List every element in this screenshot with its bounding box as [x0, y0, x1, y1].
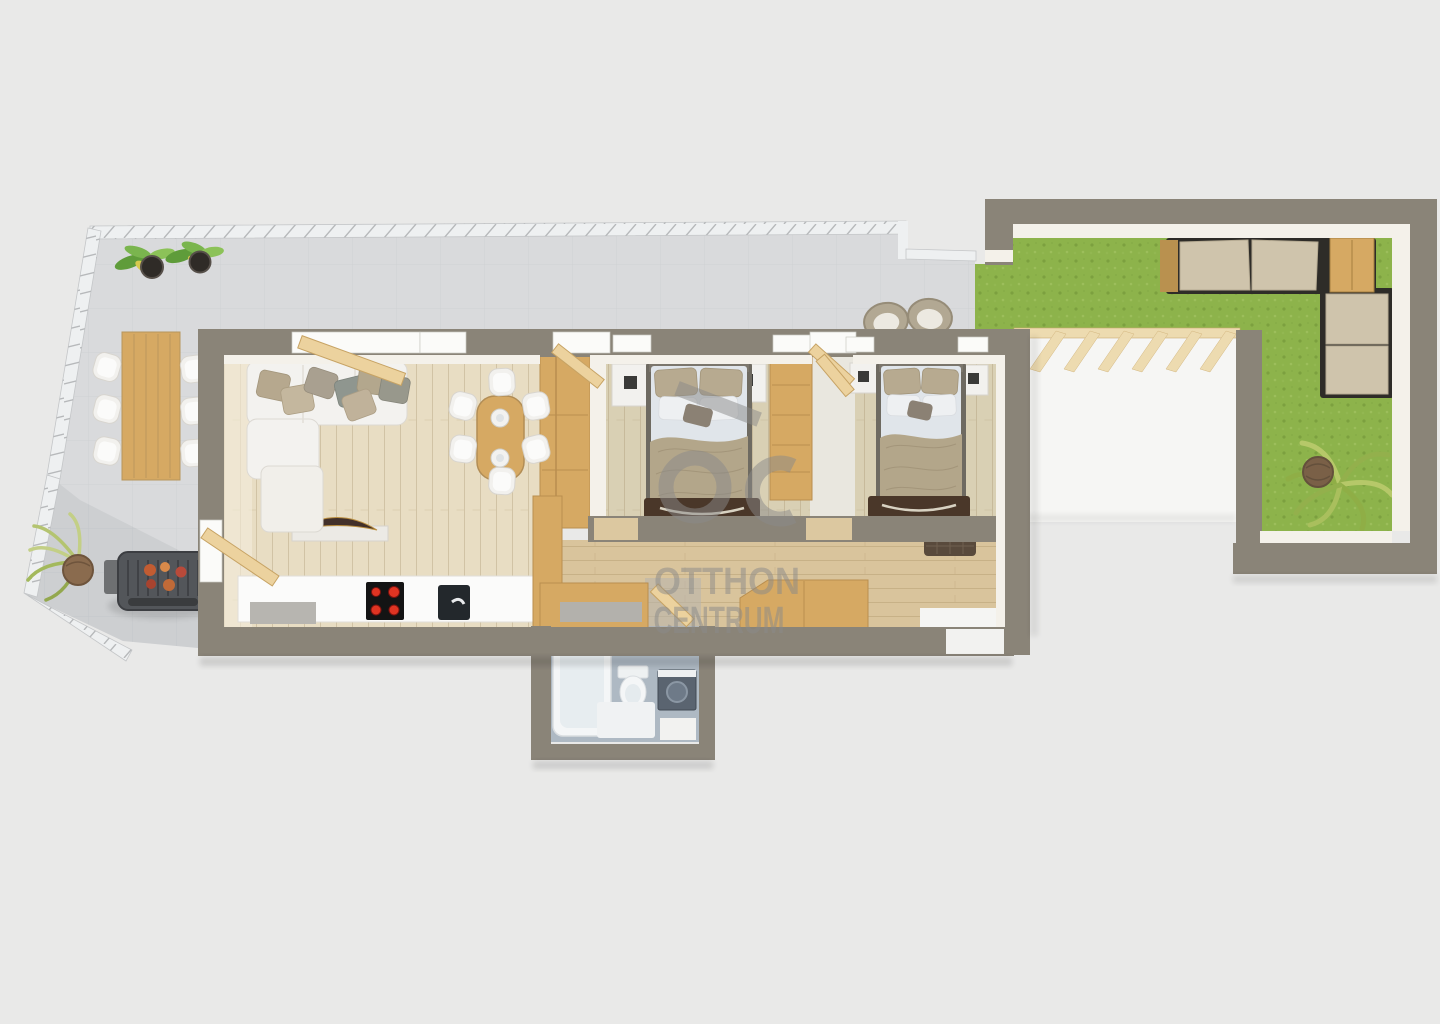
garden-bottom-wall — [1233, 543, 1437, 574]
dining-chair — [521, 390, 551, 421]
bedroom1-wardrobe — [770, 351, 812, 500]
dining-chair — [488, 467, 516, 496]
bottom-wall — [198, 627, 1014, 656]
nightstand-drawer — [624, 376, 637, 389]
appliance-front — [250, 602, 316, 624]
garden-right-wall — [1410, 199, 1437, 573]
garden-top-wall — [985, 199, 1437, 224]
plant-pot — [141, 256, 163, 278]
dining-chair — [488, 368, 515, 396]
bathroom-right-wall — [699, 626, 715, 760]
grill-handle — [128, 598, 198, 606]
wall-face — [853, 355, 1005, 364]
kitchen-sink — [438, 585, 470, 620]
hall-sideboard-inset — [560, 602, 642, 622]
bedroom1-door-opening — [594, 518, 638, 540]
entry-floor-patch — [920, 608, 1005, 628]
foot-bench — [868, 496, 970, 518]
bath-step — [660, 718, 696, 740]
terrace-door-threshold — [200, 520, 222, 582]
garden-inner-wall — [1236, 330, 1262, 574]
bathroom-left-wall — [531, 626, 551, 760]
burner — [389, 587, 400, 598]
bathroom-bottom-wall — [531, 744, 715, 760]
watermark-line1: OTTHON — [654, 561, 800, 603]
palm-pot — [1303, 457, 1333, 487]
pergola-walkway-floor — [1022, 333, 1236, 522]
watermark-line2: CENTRUM — [654, 600, 785, 642]
shadow — [200, 657, 1012, 666]
washer-door — [667, 682, 687, 702]
wall-face — [1260, 531, 1392, 543]
left-wall — [198, 329, 224, 655]
passage-door-opening — [806, 518, 852, 540]
window — [773, 335, 811, 352]
outdoor-cushion — [1252, 240, 1318, 290]
pillow — [883, 368, 921, 395]
window — [613, 335, 651, 352]
entry-door-opening — [946, 629, 1004, 654]
burner — [389, 605, 399, 615]
outdoor-cushion — [1180, 240, 1250, 290]
pillow — [921, 368, 959, 395]
wall-face — [996, 355, 1005, 627]
outdoor-cushion — [1326, 294, 1388, 344]
bedroom-bottom-wall — [588, 516, 1005, 542]
shadow — [1233, 575, 1437, 583]
wall-face — [606, 355, 812, 364]
dining-chair — [448, 434, 478, 464]
window — [420, 332, 466, 353]
balcony-long-table — [122, 332, 180, 480]
railing-top-right — [906, 249, 976, 261]
plant-pot — [63, 555, 93, 585]
wall-face — [1013, 224, 1392, 238]
plant-pot — [190, 252, 211, 273]
sofa-ottoman — [261, 466, 323, 532]
walkway-shadow — [1022, 514, 1236, 522]
bath-mat — [597, 702, 655, 738]
floor-plan-render: OTTHON CENTRUM — [0, 0, 1440, 1024]
wall-face — [985, 250, 1013, 262]
burner — [372, 588, 381, 597]
washing-machine — [658, 670, 696, 710]
nightstand-drawer — [968, 373, 979, 384]
wall-face — [1392, 224, 1410, 531]
burner — [371, 605, 381, 615]
floor-plan-svg: OTTHON CENTRUM — [0, 0, 1440, 1024]
outdoor-sofa-arm-wood — [1160, 240, 1178, 292]
window — [846, 337, 874, 352]
cooktop — [366, 582, 404, 620]
right-wall — [1004, 329, 1030, 655]
shadow — [533, 761, 713, 769]
toilet — [618, 666, 648, 708]
outdoor-cushion — [1326, 346, 1388, 394]
wall-face — [224, 355, 540, 364]
shadow — [1030, 336, 1038, 636]
nightstand-drawer — [858, 371, 869, 382]
window — [958, 337, 988, 352]
